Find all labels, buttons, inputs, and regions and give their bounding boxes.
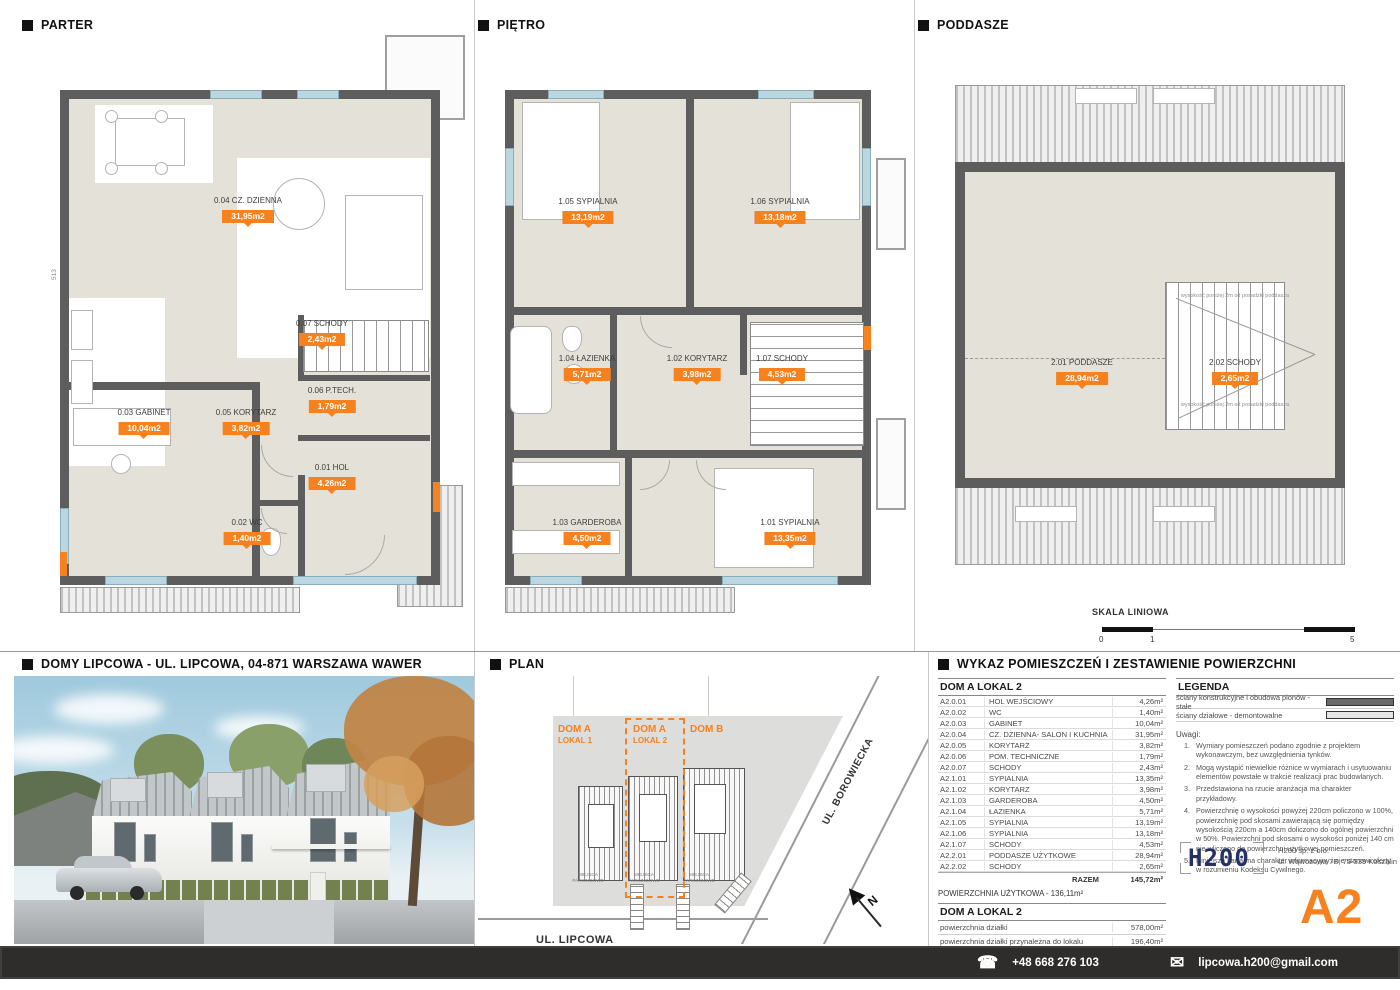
office-chair bbox=[111, 454, 131, 474]
skylight bbox=[1153, 88, 1215, 104]
footer-phone: ☎ +48 668 276 103 bbox=[977, 948, 1099, 977]
car-wheel bbox=[130, 886, 144, 900]
riser-mark bbox=[864, 326, 871, 350]
wall bbox=[740, 315, 747, 375]
chair bbox=[155, 110, 168, 123]
table-row: A2.0.07SCHODY2,43m² bbox=[938, 762, 1166, 773]
stairs bbox=[750, 322, 864, 446]
divider bbox=[928, 652, 929, 946]
divider bbox=[914, 0, 915, 652]
house-label-dom-a-lokal-2: DOM A LOKAL 2 bbox=[633, 724, 667, 745]
square-bullet-icon bbox=[22, 20, 33, 31]
balcony-hatch bbox=[505, 587, 735, 613]
footer-email: ✉ lipcowa.h200@gmail.com bbox=[1170, 948, 1338, 977]
notes-title: Uwagi: bbox=[1176, 730, 1394, 739]
house-flat-roof bbox=[588, 804, 614, 848]
section-header-photo: DOMY LIPCOWA - UL. LIPCOWA, 04-871 WARSZ… bbox=[22, 657, 422, 671]
phone-icon: ☎ bbox=[977, 954, 998, 971]
divider bbox=[474, 0, 475, 946]
wall bbox=[1335, 162, 1345, 488]
table-row: A2.2.01PODDASZE UŻYTKOWE28,94m² bbox=[938, 850, 1166, 861]
floor-plan-poddasze: 370 wysokość poniżej 2m od posadzki podd… bbox=[935, 30, 1365, 622]
room-label: 0.06 P.TECH. 1,79m2 bbox=[308, 386, 356, 414]
section-header-plan: PLAN bbox=[490, 657, 544, 671]
street-label-borowiecka: UL. BOROWIECKA bbox=[821, 736, 876, 826]
house-label-dom-b: DOM B bbox=[690, 724, 723, 736]
window bbox=[211, 822, 233, 862]
dormer-window bbox=[207, 772, 243, 798]
car-wheel bbox=[70, 886, 84, 900]
table-row: A2.1.05SYPIALNIA13,19m² bbox=[938, 817, 1166, 828]
window bbox=[862, 148, 871, 206]
wardrobe bbox=[512, 462, 620, 486]
chair bbox=[155, 162, 168, 175]
terrace-hatch bbox=[60, 587, 300, 613]
legend-item: ściany konstrukcyjne i obudowa pionów - … bbox=[1176, 696, 1394, 709]
table-row: A2.2.02SCHODY2,65m² bbox=[938, 861, 1166, 872]
phone-number: +48 668 276 103 bbox=[1012, 957, 1099, 969]
table-row: A2.0.02WC1,40m² bbox=[938, 707, 1166, 718]
window bbox=[530, 576, 582, 585]
wall bbox=[625, 458, 632, 578]
window bbox=[310, 818, 336, 862]
wall bbox=[955, 162, 965, 488]
footer-bar: ☎ +48 668 276 103 ✉ lipcowa.h200@gmail.c… bbox=[0, 946, 1400, 979]
window bbox=[722, 576, 838, 585]
scale-tick: 5 bbox=[1350, 635, 1354, 644]
table-row: A2.0.04CZ. DZIENNA- SALON I KUCHNIA31,95… bbox=[938, 729, 1166, 740]
skylight bbox=[1153, 506, 1215, 522]
room-label: 2.01 PODDASZE 28,94m2 bbox=[1051, 358, 1113, 386]
square-bullet-icon bbox=[490, 659, 501, 670]
table-total-row: RAZEM 145,72m² bbox=[938, 872, 1166, 885]
window bbox=[758, 90, 814, 99]
wall bbox=[505, 307, 871, 315]
note-item: Wymiary pomieszczeń podano zgodnie z pro… bbox=[1192, 741, 1394, 760]
sofa bbox=[345, 195, 423, 290]
parking-label: MIEJSCA PARKINGOWE bbox=[570, 872, 606, 883]
building-photo bbox=[14, 676, 474, 944]
wall bbox=[252, 500, 305, 506]
autumn-tree bbox=[364, 756, 424, 812]
room-table: DOM A LOKAL 2 A2.0.01HOL WEJŚCIOWY4,26m²… bbox=[938, 678, 1166, 963]
table-row: A2.1.01SYPIALNIA13,35m² bbox=[938, 773, 1166, 784]
riser-mark bbox=[433, 482, 440, 512]
room-label: 0.03 GABINET 10,04m2 bbox=[118, 408, 171, 436]
skylight bbox=[1015, 506, 1077, 522]
table-row: A2.1.07SCHODY4,53m² bbox=[938, 839, 1166, 850]
kitchen-sink bbox=[71, 310, 93, 350]
wall bbox=[955, 162, 1345, 172]
window bbox=[548, 90, 604, 99]
wall bbox=[298, 435, 430, 441]
wall bbox=[955, 478, 1345, 488]
scale-bar-line bbox=[1153, 629, 1304, 630]
window bbox=[505, 148, 514, 206]
parking-label: MIEJSCA PARKINGOWE bbox=[626, 872, 662, 883]
section-title: DOMY LIPCOWA - UL. LIPCOWA, 04-871 WARSZ… bbox=[41, 657, 422, 671]
usable-area-note: POWIERZCHNIA UŻYTKOWA - 136,11m² bbox=[938, 889, 1166, 898]
room-label: 1.01 SYPIALNIA 13,35m2 bbox=[760, 518, 819, 546]
email-address: lipcowa.h200@gmail.com bbox=[1198, 957, 1338, 969]
room-label: 0.02 WC 1,40m2 bbox=[224, 518, 271, 546]
road-edge bbox=[478, 918, 768, 920]
table-row: A2.0.06POM. TECHNICZNE1,79m² bbox=[938, 751, 1166, 762]
lokal2-outline bbox=[625, 718, 685, 898]
divider bbox=[0, 651, 1400, 652]
table-row: powierzchnia działki578,00m² bbox=[938, 921, 1166, 935]
adjacent-unit bbox=[876, 158, 906, 250]
wall bbox=[610, 315, 617, 450]
room-label: 2.02 SCHODY 2,65m2 bbox=[1209, 358, 1261, 386]
scale-tick: 1 bbox=[1150, 635, 1154, 644]
wall bbox=[505, 450, 871, 458]
note-item: Przedstawiona na rzucie aranżacja ma cha… bbox=[1192, 784, 1394, 803]
square-bullet-icon bbox=[938, 659, 949, 670]
cloud bbox=[54, 694, 164, 724]
section-title: PLAN bbox=[509, 657, 544, 671]
dormer-window bbox=[306, 764, 346, 792]
room-label: 0.01 HOL 4,26m2 bbox=[309, 463, 356, 491]
door bbox=[241, 834, 253, 862]
section-header-wykaz: WYKAZ POMIESZCZEŃ I ZESTAWIENIE POWIERZC… bbox=[938, 657, 1296, 671]
chair bbox=[105, 162, 118, 175]
room-label: 1.05 SYPIALNIA 13,19m2 bbox=[558, 197, 617, 225]
table-row: A2.0.01HOL WEJŚCIOWY4,26m² bbox=[938, 696, 1166, 707]
north-arrow-icon: N bbox=[843, 868, 910, 937]
floor-plan-pietro: 332 321 bbox=[490, 30, 910, 622]
dining-table bbox=[115, 118, 185, 166]
window bbox=[210, 90, 262, 99]
scale-bar-segment bbox=[1102, 627, 1153, 632]
terrace-door bbox=[293, 576, 417, 585]
scale-bar-title: SKALA LINIOWA bbox=[1092, 607, 1169, 617]
parking-label: MIEJSCA PARKINGOWE bbox=[681, 872, 717, 883]
window bbox=[105, 576, 167, 585]
room-label: 1.02 KORYTARZ 3,98m2 bbox=[667, 354, 728, 382]
house-label-dom-a-lokal-1: DOM A LOKAL 1 bbox=[558, 724, 592, 745]
wall bbox=[686, 90, 694, 315]
floor-plan-parter: 675 513 bbox=[45, 30, 465, 622]
sheet-code: A2 bbox=[1300, 880, 1363, 935]
adjacent-unit bbox=[876, 418, 906, 510]
chair bbox=[105, 110, 118, 123]
cloud bbox=[14, 736, 114, 764]
room-label: 1.07 SCHODY 4,53m2 bbox=[756, 354, 808, 382]
boundary-line bbox=[573, 676, 574, 716]
company-info: H200 sp. z o.o. ul. Wąwozowa 7B, 75-339 … bbox=[1278, 845, 1397, 868]
room-label: 0.07 SCHODY 2,43m2 bbox=[296, 319, 348, 347]
table-title: DOM A LOKAL 2 bbox=[938, 678, 1166, 696]
table-row: A2.1.06SYPIALNIA13,18m² bbox=[938, 828, 1166, 839]
height-annotation: wysokość poniżej 2m od posadzki poddasza bbox=[1181, 293, 1289, 299]
north-letter: N bbox=[865, 893, 881, 909]
wall bbox=[298, 475, 305, 576]
company-logo: H200 bbox=[1180, 842, 1264, 874]
plot-table-title: DOM A LOKAL 2 bbox=[938, 903, 1166, 921]
legend-swatch-structural bbox=[1326, 698, 1394, 706]
logo-text: H200 bbox=[1188, 844, 1250, 872]
scale-bar-segment bbox=[1304, 627, 1355, 632]
architectural-sheet: PARTER PIĘTRO PODDASZE 675 513 bbox=[0, 0, 1400, 990]
room-label: 0.05 KORYTARZ 3,82m2 bbox=[216, 408, 277, 436]
wall bbox=[298, 375, 430, 381]
car bbox=[56, 856, 166, 902]
table-row: A2.1.03GARDEROBA4,50m² bbox=[938, 795, 1166, 806]
pergola bbox=[272, 844, 390, 849]
company-name: H200 sp. z o.o. bbox=[1278, 845, 1397, 856]
table-row: A2.0.03GABINET10,04m² bbox=[938, 718, 1166, 729]
height-annotation: wysokość poniżej 2m od posadzki poddasza bbox=[1181, 402, 1289, 408]
bathtub bbox=[510, 326, 552, 414]
legend-swatch-partition bbox=[1326, 711, 1394, 719]
dormer-window bbox=[110, 778, 146, 802]
house-flat-roof bbox=[694, 784, 726, 834]
mail-icon: ✉ bbox=[1170, 954, 1184, 971]
riser-mark bbox=[60, 552, 67, 576]
driveway bbox=[204, 900, 334, 944]
roof-hatch bbox=[955, 85, 1345, 170]
square-bullet-icon bbox=[22, 659, 33, 670]
site-plan: DOM A LOKAL 1 DOM A LOKAL 2 DOM B MIEJSC… bbox=[478, 676, 928, 944]
dimension-label: 513 bbox=[51, 269, 58, 280]
table-row: A2.1.02KORYTARZ3,98m² bbox=[938, 784, 1166, 795]
company-address: ul. Wąwozowa 7B, 75-339 Koszalin bbox=[1278, 856, 1397, 867]
section-title: WYKAZ POMIESZCZEŃ I ZESTAWIENIE POWIERZC… bbox=[957, 657, 1296, 671]
window bbox=[297, 90, 339, 99]
street-label-lipcowa: UL. LIPCOWA bbox=[536, 934, 614, 944]
room-label: 1.03 GARDEROBA 4,50m2 bbox=[553, 518, 622, 546]
room-label: 1.04 ŁAZIENKA 5,71m2 bbox=[559, 354, 615, 382]
scale-tick: 0 bbox=[1099, 635, 1103, 644]
boundary-line bbox=[708, 676, 709, 716]
room-label: 0.04 CZ. DZIENNA 31,95m2 bbox=[214, 196, 282, 224]
skylight bbox=[1075, 88, 1137, 104]
note-item: Mogą wystąpić niewielkie różnice w wymia… bbox=[1192, 763, 1394, 782]
square-bullet-icon bbox=[478, 20, 489, 31]
roof-hatch bbox=[955, 485, 1345, 565]
stove bbox=[71, 360, 93, 404]
room-label: 1.06 SYPIALNIA 13,18m2 bbox=[750, 197, 809, 225]
table-row: A2.1.04ŁAZIENKA5,71m² bbox=[938, 806, 1166, 817]
square-bullet-icon bbox=[918, 20, 929, 31]
toilet bbox=[562, 326, 582, 352]
table-row: A2.0.05KORYTARZ3,82m² bbox=[938, 740, 1166, 751]
